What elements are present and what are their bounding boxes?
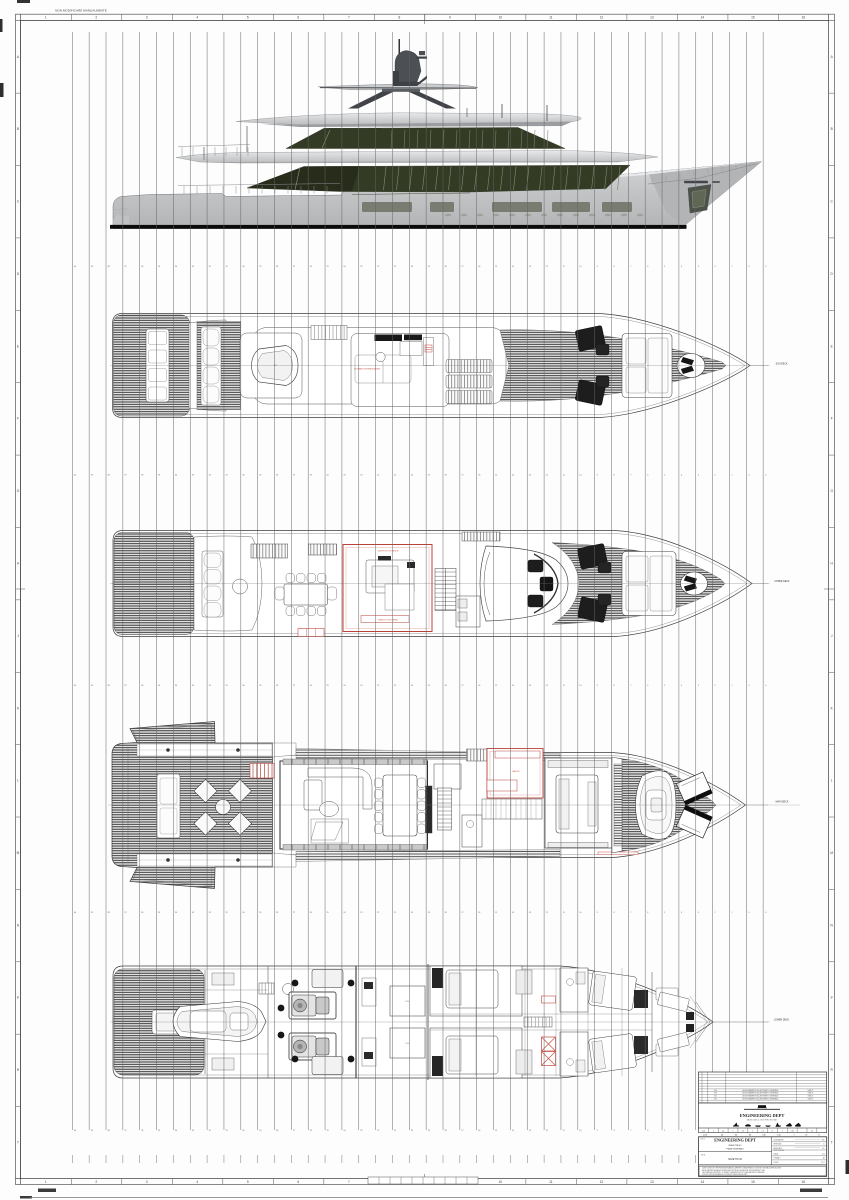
svg-text:36: 36 [141, 685, 143, 687]
svg-text:17: 17 [461, 475, 463, 477]
svg-text:36: 36 [141, 266, 143, 268]
svg-text:NAVETTA 30: NAVETTA 30 [729, 1144, 742, 1147]
svg-text:13: 13 [650, 16, 654, 20]
svg-text:22: 22 [377, 475, 379, 477]
svg-text:3: 3 [146, 16, 148, 20]
svg-text:24: 24 [343, 475, 345, 477]
svg-text:FUEL: FUEL [405, 1043, 409, 1045]
svg-text:37: 37 [124, 1130, 126, 1132]
svg-text:0: 0 [748, 912, 749, 914]
svg-text:20: 20 [411, 1130, 413, 1132]
svg-text:004: 004 [714, 1090, 717, 1092]
svg-text:23: 23 [360, 685, 362, 687]
svg-text:28: 28 [276, 912, 278, 914]
svg-text:20: 20 [411, 912, 413, 914]
svg-text:8: 8 [614, 266, 615, 268]
svg-text:6: 6 [647, 1130, 648, 1132]
svg-text:CUSTOM LINE: CUSTOM LINE [757, 1108, 767, 1110]
svg-text:35: 35 [158, 912, 160, 914]
svg-text:32: 32 [209, 266, 211, 268]
svg-text:13: 13 [529, 266, 531, 268]
svg-text:13: 13 [650, 1180, 654, 1184]
svg-text:5: 5 [247, 16, 249, 20]
svg-text:13: 13 [529, 475, 531, 477]
svg-text:3: 3 [698, 685, 699, 687]
svg-text:GEN 21: GEN 21 [808, 1096, 814, 1098]
svg-text:26: 26 [310, 912, 312, 914]
svg-text:31: 31 [225, 266, 227, 268]
svg-text:MOBILE TV CON SCHERMO: MOBILE TV CON SCHERMO [378, 620, 399, 622]
svg-text:35: 35 [158, 685, 160, 687]
svg-text:PIANI GENERALI: PIANI GENERALI [726, 1148, 744, 1151]
svg-text:17: 17 [461, 685, 463, 687]
svg-text:E: E [17, 344, 19, 348]
svg-text:28: 28 [276, 266, 278, 268]
svg-text:27: 27 [293, 912, 295, 914]
svg-text:F: F [831, 417, 833, 421]
svg-text:15: 15 [495, 912, 497, 914]
svg-text:7: 7 [630, 266, 631, 268]
svg-text:2: 2 [715, 912, 716, 914]
svg-text:8: 8 [614, 1130, 615, 1132]
svg-text:1: 1 [732, 685, 733, 687]
svg-text:24: 24 [343, 266, 345, 268]
svg-text:2: 2 [715, 685, 716, 687]
svg-text:ENGINEERING DEPT: ENGINEERING DEPT [714, 1137, 756, 1142]
svg-text:19: 19 [428, 475, 430, 477]
svg-text:15: 15 [495, 266, 497, 268]
svg-text:21: 21 [394, 912, 396, 914]
svg-text:12: 12 [546, 475, 548, 477]
svg-text:0.5: 0.5 [722, 1131, 724, 1133]
svg-text:11: 11 [563, 685, 565, 687]
svg-text:3: 3 [698, 266, 699, 268]
svg-text:31: 31 [225, 475, 227, 477]
svg-text:M: M [830, 851, 833, 855]
svg-text:18: 18 [445, 475, 447, 477]
svg-text:10: 10 [579, 475, 581, 477]
svg-text:40: 40 [721, 1134, 723, 1136]
svg-text:1.5: 1.5 [742, 1131, 744, 1133]
svg-text:14: 14 [512, 685, 514, 687]
svg-text:30: 30 [242, 266, 244, 268]
svg-text:003: 003 [714, 1093, 717, 1095]
svg-text:0.25: 0.25 [702, 1131, 705, 1133]
svg-text:10: 10 [579, 685, 581, 687]
svg-text:1:50: 1:50 [822, 1154, 825, 1156]
svg-text:1: 1 [45, 1180, 47, 1184]
svg-text:24: 24 [343, 912, 345, 914]
svg-text:1:1: 1:1 [811, 1131, 813, 1133]
svg-text:8: 8 [614, 912, 615, 914]
svg-text:12: 12 [546, 912, 548, 914]
svg-text:15: 15 [751, 1180, 755, 1184]
svg-text:23: 23 [360, 266, 362, 268]
svg-text:29: 29 [259, 475, 261, 477]
svg-text:5: 5 [664, 475, 665, 477]
svg-text:34: 34 [175, 1130, 177, 1132]
svg-text:21: 21 [394, 475, 396, 477]
svg-text:32: 32 [209, 912, 211, 914]
svg-text:13: 13 [529, 685, 531, 687]
svg-text:14: 14 [512, 266, 514, 268]
svg-text:38: 38 [108, 266, 110, 268]
svg-text:18: 18 [445, 266, 447, 268]
svg-text:32: 32 [209, 475, 211, 477]
svg-text:39: 39 [91, 266, 93, 268]
svg-text:30: 30 [242, 1130, 244, 1132]
svg-text:ENGINEERING DEPT: ENGINEERING DEPT [740, 1113, 785, 1118]
svg-text:LOWER DECK: LOWER DECK [774, 1020, 790, 1022]
svg-text:11: 11 [563, 1130, 565, 1132]
svg-text:37: 37 [124, 266, 126, 268]
svg-text:40: 40 [74, 912, 76, 914]
svg-text:10: 10 [579, 266, 581, 268]
svg-text:DIS. N.: DIS. N. [701, 1154, 706, 1156]
svg-text:L: L [17, 779, 19, 783]
svg-text:24: 24 [343, 685, 345, 687]
svg-text:29: 29 [259, 685, 261, 687]
svg-text:3: 3 [146, 1180, 148, 1184]
svg-text:26: 26 [310, 685, 312, 687]
svg-text:60: 60 [735, 1134, 737, 1136]
svg-text:MAIN DECK: MAIN DECK [776, 800, 789, 803]
svg-text:21: 21 [394, 685, 396, 687]
svg-text:38: 38 [108, 1130, 110, 1132]
svg-text:16: 16 [478, 266, 480, 268]
svg-text:40: 40 [74, 266, 76, 268]
svg-text:17: 17 [461, 1130, 463, 1132]
svg-text:19: 19 [428, 912, 430, 914]
svg-text:UPPER DECK: UPPER DECK [775, 581, 790, 583]
svg-text:0: 0 [765, 475, 766, 477]
svg-text:38: 38 [108, 685, 110, 687]
svg-text:NON MODIFICARE MANUALMENTE: NON MODIFICARE MANUALMENTE [55, 9, 107, 13]
svg-text:1: 1 [793, 1134, 794, 1136]
svg-text:22: 22 [377, 912, 379, 914]
svg-text:20: 20 [411, 266, 413, 268]
svg-text:40: 40 [74, 475, 76, 477]
svg-text:18: 18 [445, 912, 447, 914]
svg-text:002: 002 [714, 1096, 717, 1098]
svg-text:10: 10 [579, 1130, 581, 1132]
svg-text:32: 32 [209, 685, 211, 687]
svg-text:33: 33 [192, 475, 194, 477]
svg-text:5: 5 [664, 912, 665, 914]
svg-text:7.5: 7.5 [805, 1134, 808, 1136]
svg-text:NAVETTA 30: NAVETTA 30 [728, 1158, 743, 1161]
svg-text:2.5: 2.5 [761, 1131, 763, 1133]
svg-text:6: 6 [297, 1180, 299, 1184]
svg-text:31: 31 [225, 685, 227, 687]
svg-text:16: 16 [478, 685, 480, 687]
svg-text:29: 29 [259, 912, 261, 914]
svg-text:12: 12 [546, 1130, 548, 1132]
svg-text:001: 001 [714, 1098, 717, 1100]
svg-text:10: 10 [579, 912, 581, 914]
svg-text:20: 20 [411, 475, 413, 477]
svg-text:FOGLIO: FOGLIO [774, 1162, 780, 1164]
svg-text:25: 25 [327, 475, 329, 477]
svg-text:27: 27 [293, 1130, 295, 1132]
svg-text:23: 23 [360, 475, 362, 477]
svg-text:28: 28 [276, 475, 278, 477]
svg-text:39: 39 [91, 1130, 93, 1132]
svg-text:34: 34 [175, 912, 177, 914]
svg-text:32: 32 [209, 1130, 211, 1132]
svg-text:19: 19 [428, 266, 430, 268]
svg-text:2: 2 [715, 475, 716, 477]
svg-text:25: 25 [327, 1130, 329, 1132]
svg-text:17: 17 [461, 912, 463, 914]
svg-text:0.08: 0.08 [703, 1134, 707, 1136]
svg-text:21: 21 [394, 266, 396, 268]
svg-text:38: 38 [108, 475, 110, 477]
svg-text:35: 35 [158, 266, 160, 268]
svg-text:10: 10 [499, 1180, 503, 1184]
svg-text:0: 0 [748, 266, 749, 268]
svg-text:5: 5 [782, 1131, 783, 1133]
svg-text:MOVABLE SUNPADS AREA: MOVABLE SUNPADS AREA [354, 368, 380, 371]
svg-text:15: 15 [751, 16, 755, 20]
svg-text:0: 0 [748, 685, 749, 687]
svg-text:F: F [17, 417, 19, 421]
svg-text:35: 35 [158, 475, 160, 477]
svg-text:40: 40 [74, 685, 76, 687]
svg-text:15: 15 [495, 1130, 497, 1132]
svg-text:16: 16 [478, 475, 480, 477]
svg-text:40: 40 [74, 1130, 76, 1132]
svg-text:8: 8 [614, 475, 615, 477]
svg-text:34: 34 [175, 266, 177, 268]
svg-text:36: 36 [141, 475, 143, 477]
svg-text:T: T [17, 1141, 19, 1145]
svg-text:5: 5 [247, 1180, 249, 1184]
svg-text:4: 4 [681, 475, 682, 477]
svg-text:7: 7 [348, 16, 350, 20]
svg-text:0: 0 [765, 912, 766, 914]
svg-text:23: 23 [360, 912, 362, 914]
svg-text:24: 24 [343, 1130, 345, 1132]
svg-text:6: 6 [647, 475, 648, 477]
svg-text:33: 33 [192, 1130, 194, 1132]
svg-text:5: 5 [664, 1130, 665, 1132]
svg-text:31: 31 [225, 1130, 227, 1132]
svg-text:11: 11 [549, 1180, 553, 1184]
svg-text:17: 17 [461, 266, 463, 268]
svg-text:6: 6 [647, 266, 648, 268]
svg-text:12: 12 [546, 685, 548, 687]
svg-text:2: 2 [95, 16, 97, 20]
svg-text:31: 31 [225, 912, 227, 914]
svg-text:22: 22 [377, 266, 379, 268]
svg-text:1:50: 1:50 [777, 1134, 781, 1136]
svg-text:3: 3 [698, 912, 699, 914]
svg-text:T: T [831, 1141, 833, 1145]
svg-text:GEN 21: GEN 21 [808, 1090, 814, 1092]
svg-text:20: 20 [411, 685, 413, 687]
svg-text:27: 27 [293, 685, 295, 687]
svg-text:19: 19 [428, 1130, 430, 1132]
svg-text:18: 18 [445, 685, 447, 687]
svg-text:27: 27 [293, 266, 295, 268]
svg-text:11: 11 [563, 475, 565, 477]
svg-text:0: 0 [765, 685, 766, 687]
svg-text:4: 4 [196, 16, 198, 20]
svg-text:12: 12 [546, 266, 548, 268]
svg-text:4: 4 [681, 685, 682, 687]
svg-text:9: 9 [597, 266, 598, 268]
svg-text:13: 13 [529, 1130, 531, 1132]
svg-text:23: 23 [360, 1130, 362, 1132]
svg-text:0: 0 [748, 475, 749, 477]
svg-text:P: P [17, 996, 19, 1000]
svg-text:14: 14 [701, 1180, 705, 1184]
svg-text:4: 4 [681, 1130, 682, 1132]
svg-text:33: 33 [192, 266, 194, 268]
svg-text:16: 16 [478, 1130, 480, 1132]
svg-text:80: 80 [749, 1134, 751, 1136]
svg-text:2: 2 [715, 266, 716, 268]
svg-text:11: 11 [563, 912, 565, 914]
svg-text:37: 37 [124, 685, 126, 687]
svg-text:9: 9 [597, 685, 598, 687]
svg-text:26: 26 [310, 1130, 312, 1132]
svg-text:15: 15 [495, 685, 497, 687]
svg-text:22: 22 [377, 685, 379, 687]
svg-text:L: L [831, 779, 833, 783]
svg-text:B: B [17, 127, 19, 131]
svg-text:36: 36 [141, 912, 143, 914]
svg-text:1: 1 [733, 1131, 734, 1133]
svg-text:29: 29 [259, 266, 261, 268]
svg-text:B: B [831, 127, 833, 131]
svg-text:DIS. N.: DIS. N. [701, 1139, 706, 1141]
svg-text:9: 9 [597, 1130, 598, 1132]
svg-text:1: 1 [732, 475, 733, 477]
svg-text:5: 5 [664, 266, 665, 268]
svg-text:E: E [831, 344, 833, 348]
svg-text:1: 1 [45, 16, 47, 20]
svg-text:11: 11 [563, 266, 565, 268]
svg-text:9: 9 [597, 475, 598, 477]
svg-text:1: 1 [732, 912, 733, 914]
svg-text:8: 8 [614, 685, 615, 687]
svg-text:28: 28 [276, 685, 278, 687]
svg-text:19: 19 [428, 685, 430, 687]
svg-text:7: 7 [630, 475, 631, 477]
svg-text:M: M [17, 851, 20, 855]
svg-text:FUEL: FUEL [405, 1001, 409, 1003]
svg-text:14: 14 [701, 16, 705, 20]
svg-text:SUN DECK: SUN DECK [776, 363, 788, 365]
svg-text:12: 12 [600, 16, 604, 20]
svg-text:6: 6 [647, 685, 648, 687]
svg-text:7: 7 [348, 1180, 350, 1184]
svg-text:1 DI 1: 1 DI 1 [821, 1162, 825, 1164]
svg-text:26: 26 [310, 266, 312, 268]
svg-text:28: 28 [276, 1130, 278, 1132]
svg-text:0: 0 [765, 266, 766, 268]
svg-text:30: 30 [242, 912, 244, 914]
svg-text:7: 7 [630, 685, 631, 687]
svg-text:7: 7 [630, 1130, 631, 1132]
svg-text:29: 29 [259, 1130, 261, 1132]
svg-text:4: 4 [196, 1180, 198, 1184]
svg-text:27: 27 [293, 475, 295, 477]
svg-text:39: 39 [91, 685, 93, 687]
svg-text:22: 22 [377, 1130, 379, 1132]
svg-text:25: 25 [327, 685, 329, 687]
svg-text:9: 9 [597, 912, 598, 914]
svg-text:5: 5 [664, 685, 665, 687]
svg-text:2: 2 [752, 1131, 753, 1133]
svg-text:2: 2 [95, 1180, 97, 1184]
svg-text:13: 13 [529, 912, 531, 914]
svg-text:0: 0 [713, 1131, 714, 1133]
svg-text:34: 34 [175, 475, 177, 477]
svg-text:SOSTITUISCE IL: SOSTITUISCE IL [774, 1150, 785, 1152]
svg-text:37: 37 [124, 475, 126, 477]
svg-text:39: 39 [91, 475, 93, 477]
svg-text:8: 8 [398, 16, 400, 20]
svg-text:7: 7 [630, 912, 631, 914]
svg-text:1:50: 1:50 [791, 1131, 794, 1133]
svg-text:12: 12 [600, 1180, 604, 1184]
svg-text:6: 6 [297, 16, 299, 20]
svg-text:P: P [831, 996, 833, 1000]
svg-text:11: 11 [549, 16, 553, 20]
svg-text:16: 16 [802, 16, 806, 20]
svg-text:34: 34 [175, 685, 177, 687]
svg-text:8: 8 [818, 1134, 819, 1136]
svg-text:3: 3 [698, 475, 699, 477]
svg-text:38: 38 [108, 912, 110, 914]
svg-text:9: 9 [449, 16, 451, 20]
svg-text:14: 14 [512, 475, 514, 477]
svg-text:36: 36 [141, 1130, 143, 1132]
svg-text:GEN 21: GEN 21 [808, 1098, 814, 1100]
svg-text:18: 18 [445, 1130, 447, 1132]
svg-text:25: 25 [327, 912, 329, 914]
svg-text:30: 30 [242, 475, 244, 477]
svg-text:21: 21 [394, 1130, 396, 1132]
svg-text:39: 39 [91, 912, 93, 914]
svg-text:100: 100 [762, 1134, 765, 1136]
svg-text:30: 30 [242, 685, 244, 687]
svg-text:15: 15 [495, 475, 497, 477]
svg-text:10: 10 [499, 16, 503, 20]
svg-text:25: 25 [327, 266, 329, 268]
svg-text:14: 14 [512, 912, 514, 914]
svg-text:14: 14 [512, 1130, 514, 1132]
svg-text:26: 26 [310, 475, 312, 477]
svg-text:4: 4 [681, 912, 682, 914]
svg-text:16: 16 [802, 1180, 806, 1184]
svg-text:6: 6 [647, 912, 648, 914]
svg-text:1: 1 [732, 266, 733, 268]
svg-text:33: 33 [192, 685, 194, 687]
svg-text:4: 4 [681, 266, 682, 268]
svg-text:GEN 21: GEN 21 [808, 1093, 814, 1095]
svg-text:35: 35 [158, 1130, 160, 1132]
svg-text:33: 33 [192, 912, 194, 914]
svg-text:16: 16 [478, 912, 480, 914]
svg-text:GALLEY: GALLEY [512, 770, 520, 773]
svg-text:37: 37 [124, 912, 126, 914]
